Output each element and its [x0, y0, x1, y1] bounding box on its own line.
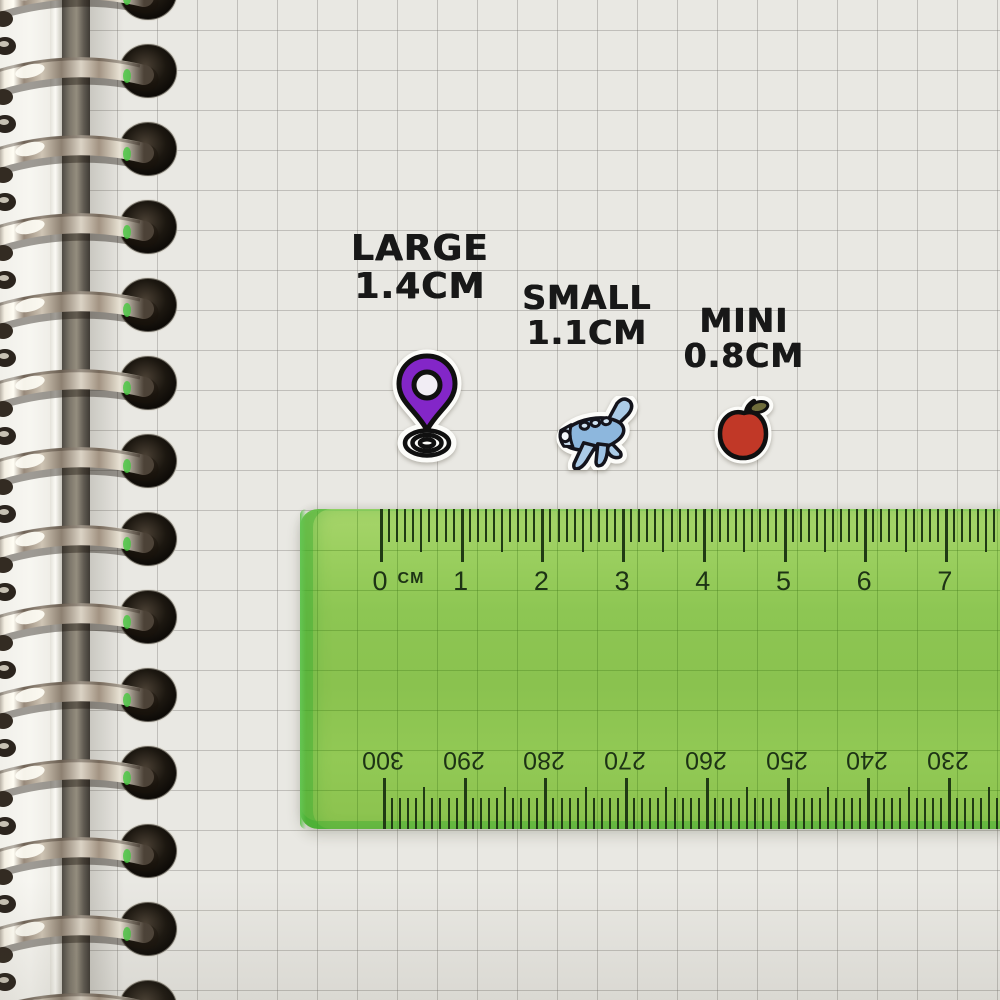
ruler-tick-bottom [674, 798, 676, 829]
binder-ring [0, 190, 180, 262]
binder-ring-slot [0, 0, 180, 28]
ruler-tick-bottom [456, 798, 458, 829]
binder-ring [0, 112, 180, 184]
ruler-tick-bottom [795, 798, 797, 829]
binder-ring-slot [0, 736, 180, 808]
ruler-tick-bottom [932, 798, 934, 829]
label-small-size: 1.1CM [512, 316, 662, 351]
binder-ring-slot [0, 580, 180, 652]
ruler-tick-bottom [577, 798, 579, 829]
label-large-name: LARGE [336, 230, 504, 268]
label-small: SMALL 1.1CM [512, 281, 662, 351]
ruler-tick-bottom [448, 798, 450, 829]
ruler-tick-bottom [835, 798, 837, 829]
ruler-tick-bottom [778, 798, 780, 829]
binder-ring-slot [0, 346, 180, 418]
ruler-mm-number: 260 [685, 745, 727, 774]
ruler-mm-number: 270 [604, 745, 646, 774]
binder-ring-slot [0, 658, 180, 730]
ruler-tick-bottom [569, 798, 571, 829]
binder-ring [0, 424, 180, 496]
ruler-tick-bottom [649, 798, 651, 829]
ruler-tick-bottom [730, 798, 732, 829]
ruler-tick-bottom [714, 798, 716, 829]
ruler-mm-number: 230 [927, 745, 969, 774]
binder-ring [0, 736, 180, 808]
ruler-tick-bottom [383, 778, 386, 829]
location-pin-icon [399, 356, 455, 456]
ruler-tick-bottom [488, 798, 490, 829]
binder-ring [0, 34, 180, 106]
label-mini-size: 0.8CM [670, 339, 818, 374]
binder-ring-slot [0, 814, 180, 886]
label-large: LARGE 1.4CM [336, 230, 504, 306]
ruler-tick-bottom [480, 798, 482, 829]
label-mini: MINI 0.8CM [670, 304, 818, 374]
ruler-tick-bottom [956, 798, 958, 829]
ruler-tick-bottom [706, 778, 709, 829]
ruler-tick-bottom [682, 798, 684, 829]
ruler-tick-bottom [415, 798, 417, 829]
ruler-tick-bottom [746, 787, 748, 829]
ruler-tick-bottom [916, 798, 918, 829]
ruler-tick-bottom [899, 798, 901, 829]
ruler-tick-bottom [665, 787, 667, 829]
ruler-tick-bottom [722, 798, 724, 829]
ruler-tick-bottom [762, 798, 764, 829]
ruler-tick-bottom [625, 778, 628, 829]
ruler-tick-bottom [891, 798, 893, 829]
ruler-tick-bottom [431, 798, 433, 829]
binder-ring-slot [0, 112, 180, 184]
binder-ring [0, 892, 180, 964]
ruler-tick-bottom [561, 798, 563, 829]
ruler-tick-bottom [504, 787, 506, 829]
binder-ring [0, 268, 180, 340]
spiral-binding [0, 0, 185, 1000]
ruler-tick-bottom [536, 798, 538, 829]
ruler-tick-bottom [464, 778, 467, 829]
binder-ring-slot [0, 268, 180, 340]
ruler-tick-bottom [601, 798, 603, 829]
ruler-tick-bottom [843, 798, 845, 829]
label-large-size: 1.4CM [336, 268, 504, 306]
binder-ring [0, 970, 180, 1000]
ruler-tick-bottom [512, 798, 514, 829]
ruler-tick-bottom [690, 798, 692, 829]
ruler-tick-bottom [544, 778, 547, 829]
label-mini-name: MINI [670, 304, 818, 339]
binder-ring [0, 346, 180, 418]
ruler-tick-bottom [617, 798, 619, 829]
binder-ring-slot [0, 892, 180, 964]
location-pin-sticker [388, 346, 466, 468]
ruler-tick-bottom [770, 798, 772, 829]
binder-ring [0, 502, 180, 574]
ruler-tick-bottom [787, 778, 790, 829]
ruler-tick-bottom [391, 798, 393, 829]
binder-ring [0, 580, 180, 652]
ruler-tick-bottom [908, 787, 910, 829]
binder-ring [0, 814, 180, 886]
ruler-tick-bottom [988, 787, 990, 829]
ruler-tick-bottom [593, 798, 595, 829]
binder-ring-slot [0, 424, 180, 496]
ruler-tick-bottom [972, 798, 974, 829]
label-small-name: SMALL [512, 281, 662, 316]
ruler-tick-bottom [496, 798, 498, 829]
ruler-tick-bottom [859, 798, 861, 829]
ruler-tick-bottom [609, 798, 611, 829]
apple-sticker [709, 396, 779, 464]
ruler-tick-bottom [520, 798, 522, 829]
binder-ring [0, 658, 180, 730]
ruler-tick-bottom [996, 798, 998, 829]
ruler-tick-bottom [423, 787, 425, 829]
ruler-tick-bottom [399, 798, 401, 829]
ruler-tick-bottom [698, 798, 700, 829]
ruler-tick-bottom [407, 798, 409, 829]
notebook-photo: LARGE 1.4CM SMALL 1.1CM MINI 0.8CM [0, 0, 1000, 1000]
ruler-tick-bottom [657, 798, 659, 829]
ruler-tick-bottom [585, 787, 587, 829]
ruler-tick-bottom [867, 778, 870, 829]
punch-hole [119, 980, 177, 1000]
ruler-mm-number: 280 [524, 745, 566, 774]
ruler-tick-bottom [754, 798, 756, 829]
ruler-mm-number: 250 [766, 745, 808, 774]
ruler-mm-number: 290 [443, 745, 485, 774]
ruler-tick-bottom [472, 798, 474, 829]
ruler-tick-bottom [964, 798, 966, 829]
binder-ring-slot [0, 190, 180, 262]
ruler-tick-bottom [875, 798, 877, 829]
ruler-tick-bottom [819, 798, 821, 829]
ruler-bottom-scale: 300290280270260250240230 [300, 509, 1000, 829]
ruler-tick-bottom [851, 798, 853, 829]
ruler-tick-bottom [738, 798, 740, 829]
ruler-tick-bottom [883, 798, 885, 829]
ruler-tick-bottom [811, 798, 813, 829]
ruler-tick-bottom [552, 798, 554, 829]
ruler-tick-bottom [641, 798, 643, 829]
ruler-tick-bottom [439, 798, 441, 829]
binder-ring [0, 0, 180, 28]
ruler-tick-bottom [633, 798, 635, 829]
ruler-tick-bottom [528, 798, 530, 829]
ruler-tick-bottom [803, 798, 805, 829]
ruler: 01234567CM 300290280270260250240230 [300, 509, 1000, 829]
ruler-tick-bottom [924, 798, 926, 829]
ruler-tick-bottom [980, 798, 982, 829]
airplane-sticker [545, 396, 645, 470]
binder-ring-slot [0, 34, 180, 106]
binder-ring-slot [0, 970, 180, 1000]
ruler-tick-bottom [940, 798, 942, 829]
ruler-mm-number: 300 [362, 745, 404, 774]
ruler-tick-bottom [827, 787, 829, 829]
ruler-tick-bottom [948, 778, 951, 829]
binder-ring-slot [0, 502, 180, 574]
ruler-mm-number: 240 [846, 745, 888, 774]
